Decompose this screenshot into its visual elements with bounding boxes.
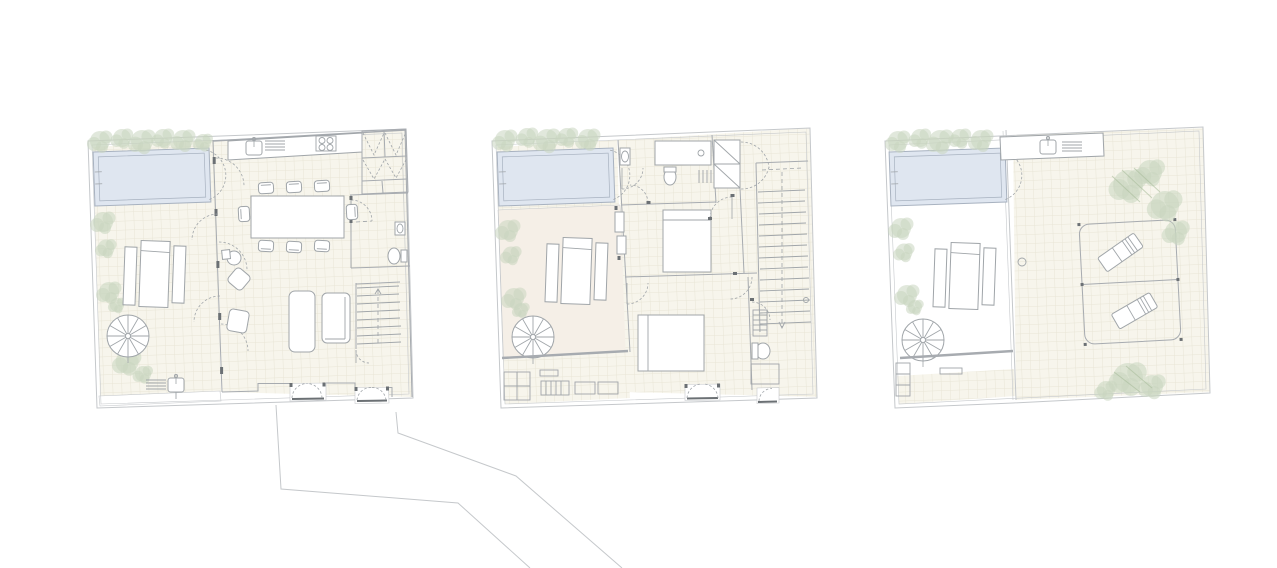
site-boundary-line bbox=[276, 405, 530, 568]
dining-table bbox=[251, 196, 344, 238]
lower-terrace-strip bbox=[503, 352, 630, 404]
swimming-pool bbox=[497, 147, 631, 206]
ground-floor-plan bbox=[87, 129, 413, 408]
door-sill bbox=[687, 398, 718, 399]
bed bbox=[663, 210, 711, 272]
armchair bbox=[226, 308, 250, 333]
divider-window bbox=[617, 236, 626, 254]
first-floor-plan bbox=[492, 128, 817, 408]
floor-plan-canvas bbox=[0, 0, 1277, 568]
door-sill bbox=[357, 401, 387, 402]
door-sill bbox=[292, 399, 324, 400]
divider-window bbox=[615, 212, 624, 232]
roof-plan bbox=[885, 127, 1210, 408]
shower-tray bbox=[655, 141, 711, 165]
swimming-pool bbox=[93, 147, 227, 206]
drawing-sheet bbox=[0, 0, 1277, 568]
site-context-boundary-lines bbox=[276, 405, 622, 568]
sun-loungers bbox=[123, 241, 186, 308]
daybed bbox=[289, 291, 315, 352]
site-boundary-line bbox=[396, 412, 622, 568]
interior-tiled-floor bbox=[213, 130, 412, 397]
sofa bbox=[322, 293, 350, 343]
sun-loungers bbox=[933, 243, 996, 310]
wc-icon bbox=[388, 248, 400, 264]
spiral-staircase-icon bbox=[902, 319, 944, 367]
sun-loungers bbox=[545, 238, 608, 305]
outdoor-kitchen bbox=[1000, 133, 1104, 160]
terrace-trees bbox=[888, 218, 924, 316]
